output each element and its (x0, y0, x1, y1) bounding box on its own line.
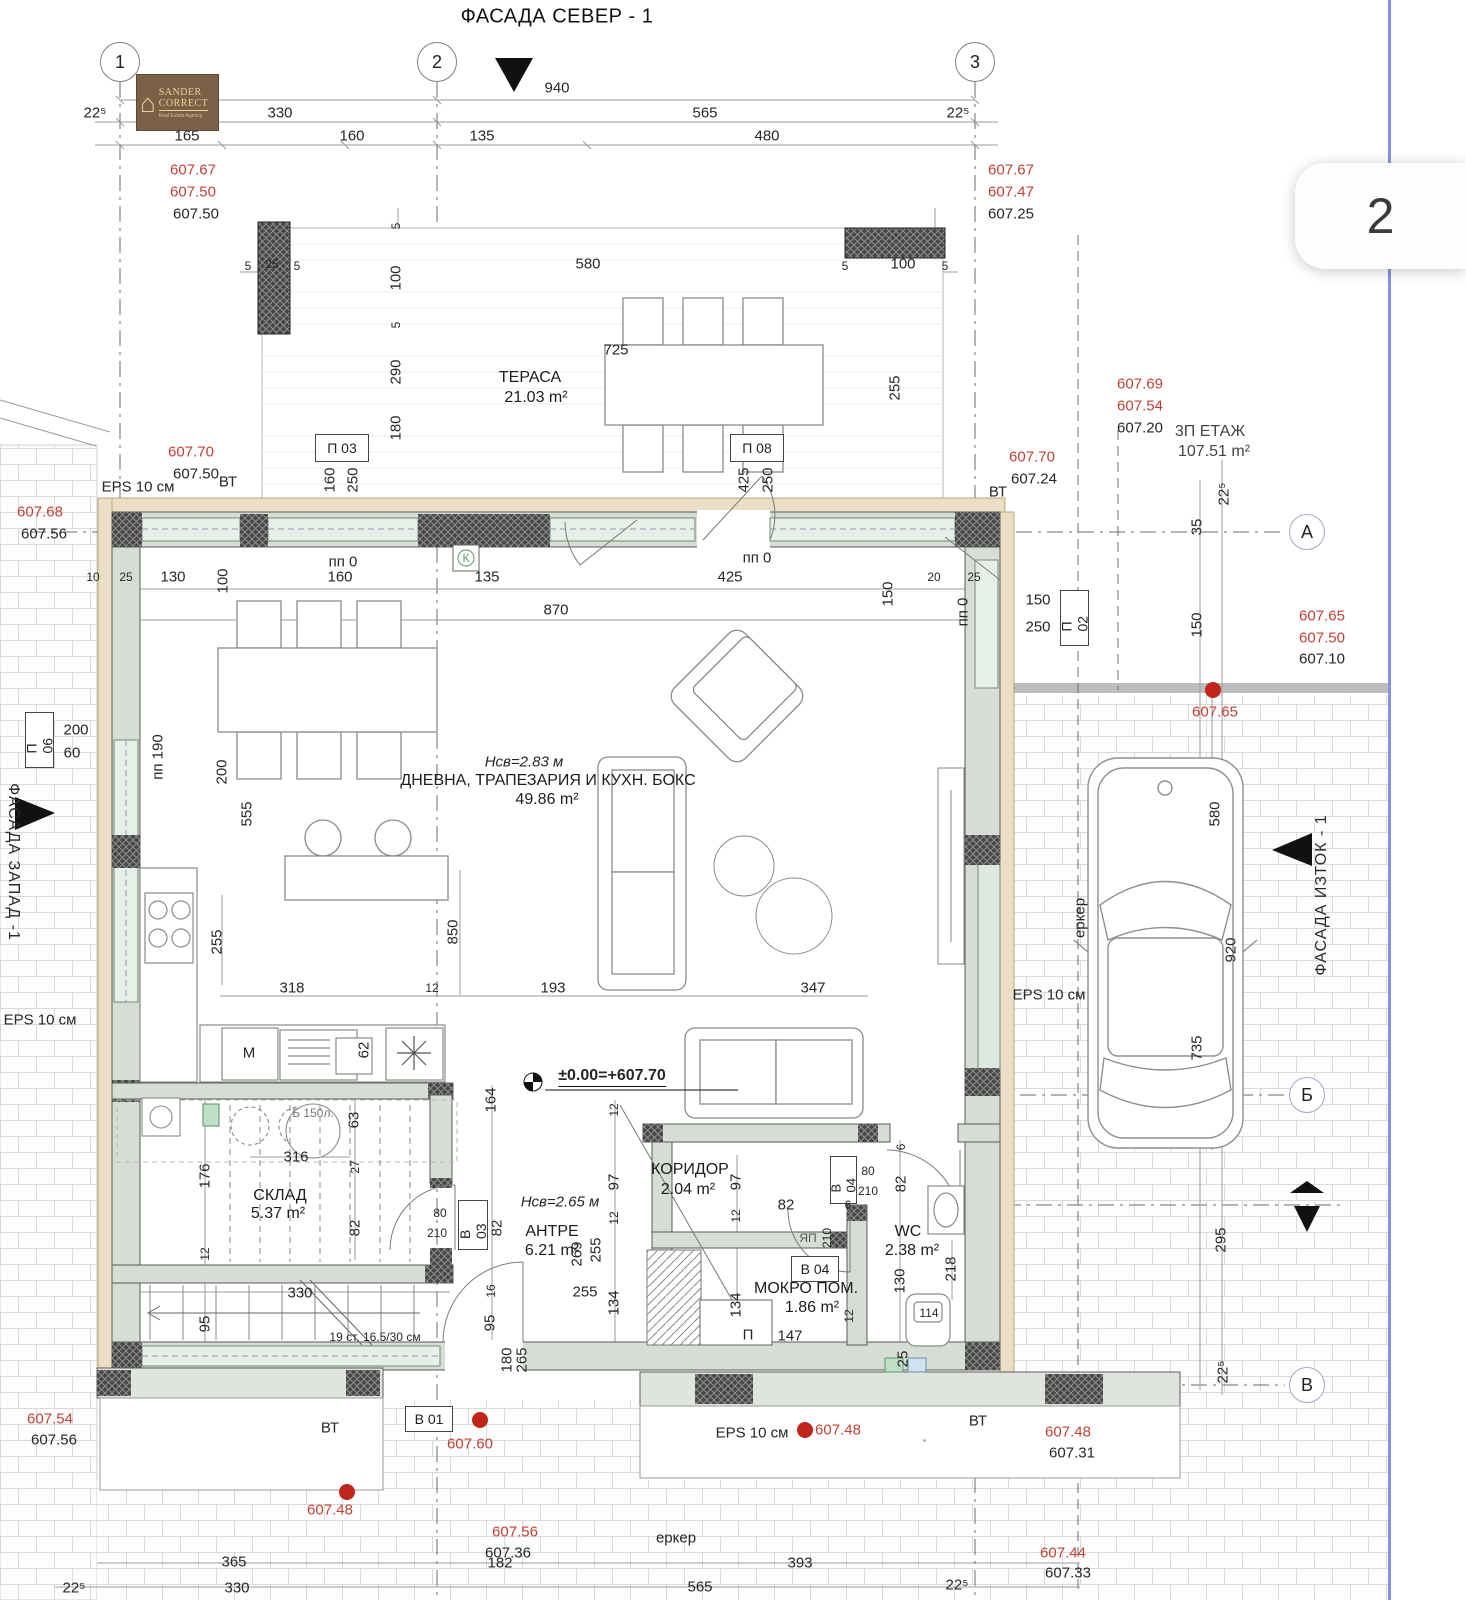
coffee-table (714, 836, 774, 896)
dim-label: 135 (469, 128, 494, 145)
elevation-black: 607.24 (1011, 471, 1057, 488)
grid-axis-1: 1 (100, 42, 140, 82)
elevation-red: 607.65 (1299, 608, 1345, 625)
etage-name: 3П ЕТАЖ (1175, 423, 1245, 441)
dim-label: 22⁵ (84, 105, 107, 122)
dim-label: 62 (356, 1042, 373, 1059)
room-living-name: ДНЕВНА, ТРАПЕЗАРИЯ И КУХН. БОКС (400, 772, 695, 790)
pp0-label: пп 0 (743, 550, 772, 567)
dim-label: 130 (892, 1268, 909, 1293)
room-living-area: 49.86 m² (515, 791, 578, 809)
level-mark: ±0.00=+607.70 (558, 1067, 666, 1087)
dim-label: 100 (388, 265, 405, 290)
elevation-red: 607.48 (815, 1422, 861, 1439)
dim-label: 255 (887, 375, 904, 400)
dim-label: 160 (339, 128, 364, 145)
logo-line2: CORRECT (159, 98, 209, 111)
dim-label: 150 (1189, 612, 1206, 637)
opening-tag-p03: П 03 (315, 434, 369, 462)
dim-label: 16 (484, 1284, 498, 1297)
dim-label: 870 (543, 602, 568, 619)
room-koridor-area: 2.04 m² (661, 1181, 715, 1199)
elevation-black: 607.31 (1049, 1445, 1095, 1462)
dim-label: 82 (893, 1176, 910, 1193)
elevation-red: 607.44 (1040, 1545, 1086, 1562)
dim-label: 218 (943, 1256, 960, 1281)
dim-label: 290 (388, 359, 405, 384)
dim-label: 210 (427, 1226, 447, 1240)
elevation-red: 607.48 (307, 1502, 353, 1519)
elevation-black: 607.25 (988, 206, 1034, 223)
elevation-black: 607.33 (1045, 1565, 1091, 1582)
dim-label: 35 (1189, 519, 1206, 536)
facade-west-label: ФАСАДА ЗАПАД -1 (4, 783, 22, 941)
dim-label: 25 (895, 1351, 912, 1368)
room-wc-area: 2.38 m² (885, 1242, 939, 1260)
room-mokro-name: МОКРО ПОМ. (754, 1280, 858, 1298)
elevation-black: 607.50 (173, 466, 219, 483)
dim-label: 25 (967, 570, 980, 584)
dim-label: 12 (198, 1247, 212, 1260)
elevation-red: 607.50 (1299, 630, 1345, 647)
opening-tag-p06: П 06 (25, 712, 54, 768)
dim-label: 134 (606, 1290, 623, 1315)
room-sklad-name: СКЛАД (253, 1187, 306, 1205)
dim-label: 250 (760, 467, 777, 492)
drawing-title: ФАСАДА СЕВЕР - 1 (461, 6, 654, 29)
plan-drawing (0, 0, 1466, 1600)
dim-label: 725 (603, 342, 628, 359)
elevation-red: 607.67 (170, 162, 216, 179)
page-number-card: 2 (1295, 163, 1466, 269)
opening-tag-p08: П 08 (730, 434, 784, 462)
elevation-red: 607.54 (1117, 398, 1163, 415)
room-antre-name: АНТРЕ (525, 1223, 578, 1241)
dim-label: 330 (224, 1580, 249, 1597)
dim-label: 6 (894, 1144, 908, 1151)
dim-label: 63 (346, 1112, 363, 1129)
dim-label: 365 (221, 1554, 246, 1571)
elevation-red: 607.69 (1117, 376, 1163, 393)
dim-label: 318 (279, 980, 304, 997)
dim-label: 316 (283, 1149, 308, 1166)
dim-label: 5 (389, 322, 403, 329)
dim-label: 580 (1207, 801, 1224, 826)
dim-label: 134 (728, 1292, 745, 1317)
opening-tag-p02: П 02 (1060, 590, 1089, 646)
vt-label: ВТ (219, 474, 237, 491)
dim-label: 22⁵ (946, 1577, 969, 1594)
dim-label: 147 (777, 1328, 802, 1345)
erker-label: еркер (1072, 898, 1089, 938)
elevation-red: 607.48 (1045, 1424, 1091, 1441)
eps-label: EPS 10 см (102, 479, 175, 496)
terrace-column (258, 222, 290, 334)
room-wc-name: WC (895, 1223, 922, 1241)
dim-label: 250 (345, 467, 362, 492)
agency-logo: ⌂ SANDER CORRECT Real Estate Agency (136, 74, 219, 131)
dim-label: 5 (294, 259, 301, 273)
pp0-label: пп 0 (955, 598, 972, 627)
dim-label: 295 (1213, 1227, 1230, 1252)
elevation-red: 607.54 (27, 1411, 73, 1428)
dim-label: 12 (607, 1103, 621, 1116)
page-number: 2 (1367, 187, 1395, 245)
boiler-label: Б 150л. (292, 1106, 334, 1120)
dim-label: 850 (445, 919, 462, 944)
eps-label: EPS 10 см (1013, 987, 1086, 1004)
dim-label: 22⁵ (947, 105, 970, 122)
sofa-vertical (598, 757, 686, 990)
dim-label: 735 (1189, 1035, 1206, 1060)
yap-label: ЯП (799, 1231, 816, 1245)
elevation-red: 607.68 (17, 504, 63, 521)
erker-label: еркер (656, 1530, 696, 1547)
dim-label: 6 (845, 1198, 852, 1212)
dim-label: 25 (265, 257, 278, 271)
elevation-red: 607.50 (170, 184, 216, 201)
logo-line1: SANDER (159, 87, 209, 99)
room-koridor-name: КОРИДОР (651, 1161, 729, 1179)
elevation-red: 607.67 (988, 162, 1034, 179)
elevation-red: 607.60 (447, 1436, 493, 1453)
dim-label: 255 (209, 929, 226, 954)
dim-label: 269 (569, 1241, 586, 1266)
dim-label: 176 (197, 1163, 214, 1188)
dim-label: 5 (389, 223, 403, 230)
vt-label: ВТ (321, 1420, 339, 1437)
grid-axis-B: Б (1289, 1077, 1325, 1113)
grid-axis-A: А (1289, 514, 1325, 550)
dim-label: 580 (575, 256, 600, 273)
dim-label: 425 (717, 569, 742, 586)
dim-label: 255 (572, 1284, 597, 1301)
dim-label: 12 (425, 981, 438, 995)
dim-label: 330 (267, 105, 292, 122)
room-mokro-area: 1.86 m² (785, 1299, 839, 1317)
dim-label: 25 (119, 570, 132, 584)
dim-label: 210 (820, 1228, 834, 1248)
opening-tag-v04: В 04 (830, 1156, 857, 1204)
dining-set (218, 601, 437, 779)
dim-label: 22⁵ (1215, 1361, 1232, 1384)
logo-house-icon: ⌂ (140, 90, 156, 116)
eps-label: EPS 10 см (4, 1012, 77, 1029)
dim-label: 150 (880, 581, 897, 606)
kitchen-island (285, 820, 448, 900)
dim-label: 150 (1025, 592, 1050, 609)
dim-label: 160 (327, 569, 352, 586)
dim-label: 330 (287, 1285, 312, 1302)
floor-plan-sheet: 2 ⌂ SANDER CORRECT Real Estate Agency ФА… (0, 0, 1466, 1600)
dim-label: 5 (942, 259, 949, 273)
dim-label: 80 (861, 1164, 874, 1178)
room-sklad-area: 5.37 m² (251, 1205, 305, 1223)
dim-label: 80 (433, 1206, 446, 1220)
dim-label: 130 (160, 569, 185, 586)
dim-label: 265 (514, 1347, 531, 1372)
dim-label: 135 (474, 569, 499, 586)
elevation-black: 607.56 (31, 1432, 77, 1449)
retaining-wall (1005, 683, 1390, 693)
elevation-red: 607.70 (1009, 449, 1055, 466)
pp190-label: пп 190 (150, 734, 167, 779)
dim-label: 12 (729, 1209, 743, 1222)
dim-label: 20 (927, 570, 940, 584)
dim-label: 82 (778, 1197, 795, 1214)
dim-label: 100 (215, 568, 232, 593)
coffee-table (756, 878, 832, 954)
elevation-red: 607.70 (168, 444, 214, 461)
dim-label: 940 (544, 80, 569, 97)
dim-label: 200 (214, 759, 231, 784)
etage-area: 107.51 m² (1178, 443, 1250, 461)
dim-label: 27 (348, 1160, 362, 1173)
dim-label: 100 (890, 256, 915, 273)
stair-note: 19 ст. 16.5/30 см (329, 1330, 420, 1344)
dim-label: 114 (919, 1306, 938, 1320)
dim-label: 180 (388, 415, 405, 440)
dim-label: 565 (692, 105, 717, 122)
dim-label: 160 (322, 467, 339, 492)
dim-label: 95 (482, 1315, 499, 1332)
elevation-red: 607.56 (492, 1524, 538, 1541)
armchair (666, 625, 807, 766)
shaft-label: П (743, 1327, 754, 1344)
dim-label: 920 (1223, 937, 1240, 962)
dim-label: 425 (736, 467, 753, 492)
grid-axis-2: 2 (417, 42, 457, 82)
dim-label: 60 (64, 745, 81, 762)
room-terrace-area: 21.03 m² (504, 389, 567, 407)
grid-axis-3: 3 (955, 42, 995, 82)
room-living-height: Нсв=2.83 м (485, 754, 564, 771)
elevation-black: 607.50 (173, 206, 219, 223)
dim-label: 82 (489, 1220, 506, 1237)
north-triangle-icon (495, 58, 533, 92)
dim-label: 565 (687, 1579, 712, 1596)
vt-label: ВТ (969, 1413, 987, 1430)
dim-label: 97 (606, 1174, 623, 1191)
k-marker: К (463, 551, 470, 565)
room-antre-height: Нсв=2.65 м (521, 1194, 600, 1211)
dim-label: 97 (728, 1174, 745, 1191)
dim-label: 22⁵ (1216, 483, 1233, 506)
dim-label: 555 (239, 801, 256, 826)
logo-line3: Real Estate Agency (159, 113, 209, 119)
vt-label: ВТ (989, 484, 1007, 501)
dim-label: 347 (800, 980, 825, 997)
eps-label: EPS 10 см (716, 1425, 789, 1442)
elevation-red: 607.47 (988, 184, 1034, 201)
facade-east-label: ФАСАДА ИЗТОК - 1 (1313, 814, 1331, 975)
dim-label: 250 (1025, 619, 1050, 636)
opening-tag-v03: В 03 (458, 1200, 488, 1250)
dim-label: 82 (347, 1220, 364, 1237)
dim-label: 255 (588, 1237, 605, 1262)
washer-label: M (243, 1045, 256, 1062)
dim-label: 12 (607, 1211, 621, 1224)
dim-label: 12 (842, 1309, 856, 1322)
dim-label: 5 (842, 259, 849, 273)
dim-label: 480 (754, 128, 779, 145)
grid-axis-C: В (1289, 1367, 1325, 1403)
dim-label: 5 (245, 259, 252, 273)
elevation-black: 607.20 (1117, 420, 1163, 437)
sofa-horizontal (685, 1028, 863, 1118)
dim-label: 193 (540, 980, 565, 997)
dim-label: 22⁵ (63, 1580, 86, 1597)
dim-label: 210 (858, 1184, 878, 1198)
opening-tag-v01: В 01 (405, 1406, 453, 1432)
opening-tag-v04b: В 04 (791, 1256, 839, 1282)
dim-label: 393 (787, 1555, 812, 1572)
room-terrace-name: ТЕРАСА (499, 369, 561, 387)
dim-label: 10 (86, 570, 99, 584)
elevation-black: 607.36 (485, 1545, 531, 1562)
elevation-red: 607.65 (1192, 704, 1238, 721)
elevation-black: 607.56 (21, 526, 67, 543)
terrace-column (845, 228, 945, 258)
dim-label: 95 (197, 1316, 214, 1333)
dim-label: 164 (483, 1087, 500, 1112)
elevation-black: 607.10 (1299, 651, 1345, 668)
dim-label: 200 (63, 722, 88, 739)
